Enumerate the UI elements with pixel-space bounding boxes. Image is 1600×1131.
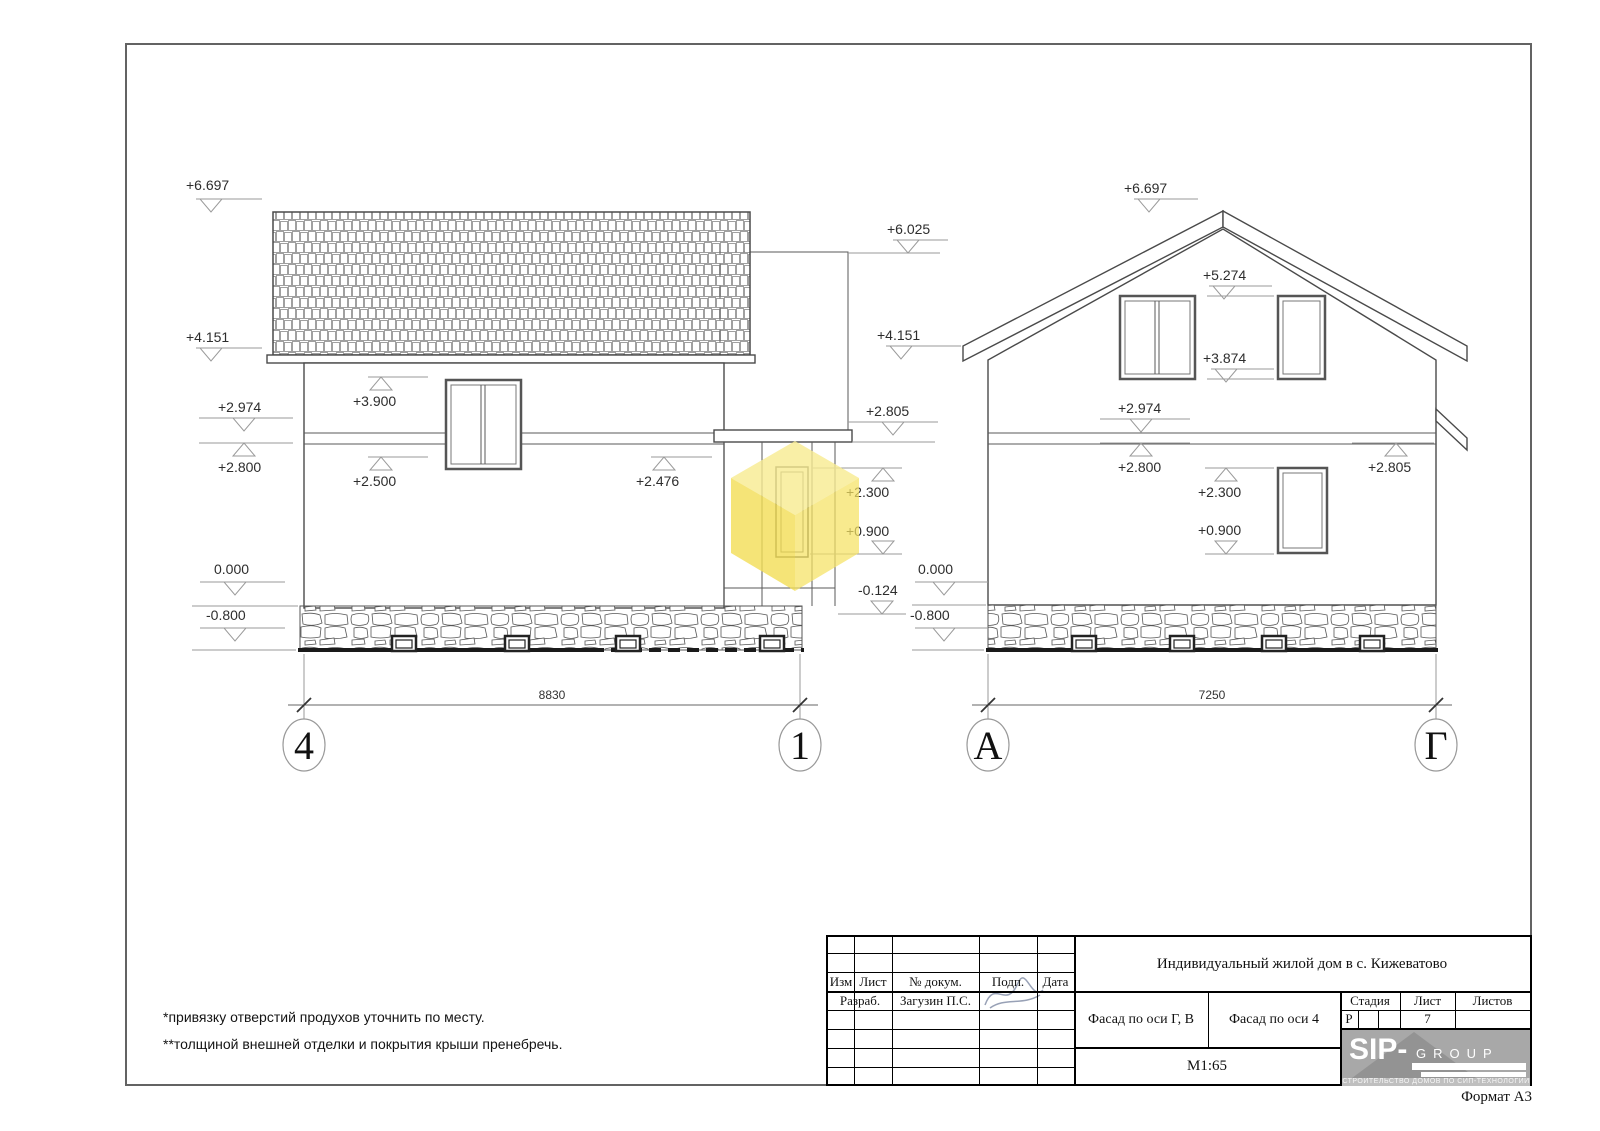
- header-list: Лист: [854, 972, 892, 991]
- grid-line: [1358, 1010, 1359, 1028]
- scale-value: М1:65: [1074, 1049, 1340, 1084]
- format-label: Формат А3: [1440, 1089, 1532, 1106]
- header-sign: Подп.: [979, 972, 1037, 991]
- stage-label: Стадия: [1340, 991, 1400, 1010]
- grid-line: [828, 1029, 1074, 1030]
- gable-wall: [988, 229, 1436, 605]
- elevation-label: +6.697: [1124, 180, 1167, 196]
- elevation-label: +0.900: [1198, 522, 1241, 538]
- elevation-label: +4.151: [186, 329, 229, 345]
- logo-bar: [1421, 1072, 1526, 1077]
- elevation-label: +2.476: [636, 473, 679, 489]
- sheet-number: 7: [1400, 1010, 1455, 1028]
- sheets-label: Листов: [1455, 991, 1530, 1010]
- left-facade: [267, 212, 852, 651]
- logo-brand-suffix: GROUP: [1416, 1046, 1499, 1061]
- header-doc: № докум.: [892, 972, 979, 991]
- axis-bubbles: 4 1 А Г: [283, 719, 1457, 771]
- project-title: Индивидуальный жилой дом в с. Кижеватово: [1074, 939, 1530, 991]
- porch-roof-profile: [1436, 409, 1467, 450]
- elevation-label: +2.300: [1198, 484, 1241, 500]
- main-roof-fascia: [267, 355, 755, 363]
- main-roof: [273, 212, 750, 355]
- elevation-label: +2.805: [866, 403, 909, 419]
- window-left-facade: [446, 380, 521, 469]
- note-2: **толщиной внешней отделки и покрытия кр…: [163, 1036, 563, 1052]
- elevation-label: +2.800: [218, 459, 261, 475]
- drawing-sheet: +6.697 +4.151 +2.974 +2.800 0.000 -0.800…: [0, 0, 1600, 1131]
- grid-line: [828, 1010, 1074, 1011]
- dimension-left: 8830: [288, 654, 818, 719]
- note-1: *привязку отверстий продухов уточнить по…: [163, 1009, 485, 1025]
- grid-line: [1378, 1010, 1379, 1028]
- elevation-label: +2.800: [1118, 459, 1161, 475]
- axis-bubble-label: А: [974, 723, 1003, 768]
- elevation-label: +6.697: [186, 177, 229, 193]
- elevation-label: +2.805: [1368, 459, 1411, 475]
- grid-line: [828, 1048, 1074, 1049]
- axis-bubble-label: 4: [294, 723, 314, 768]
- stage-value: Р: [1340, 1010, 1358, 1028]
- first-floor-window: [1278, 468, 1327, 553]
- dimension-label: 8830: [539, 688, 566, 702]
- sheet-label: Лист: [1400, 991, 1455, 1010]
- dimension-label: 7250: [1199, 688, 1226, 702]
- elevation-label: -0.800: [910, 607, 950, 623]
- elevation-label: 0.000: [918, 561, 953, 577]
- gable-window-double: [1120, 296, 1195, 379]
- logo-bar: [1412, 1063, 1526, 1070]
- header-izm: Изм: [828, 972, 854, 991]
- elevation-label: -0.124: [858, 582, 898, 598]
- developer-name: Загузин П.С.: [892, 991, 979, 1010]
- elevation-label: +2.500: [353, 473, 396, 489]
- grid-line: [828, 953, 1074, 954]
- logo-tagline: СТРОИТЕЛЬСТВО ДОМОВ ПО СИП-ТЕХНОЛОГИИ: [1342, 1078, 1530, 1086]
- elevation-label: +5.274: [1203, 267, 1246, 283]
- elevation-label: 0.000: [214, 561, 249, 577]
- title-block: Изм Лист № докум. Подп. Дата Разраб. Заг…: [826, 935, 1532, 1086]
- elevation-triangle: [200, 199, 222, 212]
- elevation-label: +3.900: [353, 393, 396, 409]
- axis-bubble-label: Г: [1424, 723, 1447, 768]
- logo-brand: SIP-: [1349, 1033, 1407, 1067]
- elevation-label: -0.800: [206, 607, 246, 623]
- developer-label: Разраб.: [828, 991, 892, 1010]
- elevation-label: +2.974: [1118, 400, 1161, 416]
- sheet-title-2: Фасад по оси 4: [1208, 993, 1340, 1047]
- header-date: Дата: [1037, 972, 1074, 991]
- elevation-label: +4.151: [877, 327, 920, 343]
- axis-bubble-label: 1: [790, 723, 810, 768]
- cube-watermark-icon: [731, 441, 859, 591]
- sheet-title-1: Фасад по оси Г, В: [1074, 993, 1208, 1047]
- porch-fascia: [714, 430, 852, 442]
- basement-left-facade: [300, 606, 802, 650]
- sip-group-logo: SIP- GROUP: [1342, 1030, 1530, 1078]
- grid-line: [828, 1067, 1074, 1068]
- gable-window-single: [1278, 296, 1325, 379]
- elevation-label: +3.874: [1203, 350, 1246, 366]
- elevation-label: +6.025: [887, 221, 930, 237]
- elevation-label: +2.974: [218, 399, 261, 415]
- dimension-right: 7250: [972, 654, 1452, 719]
